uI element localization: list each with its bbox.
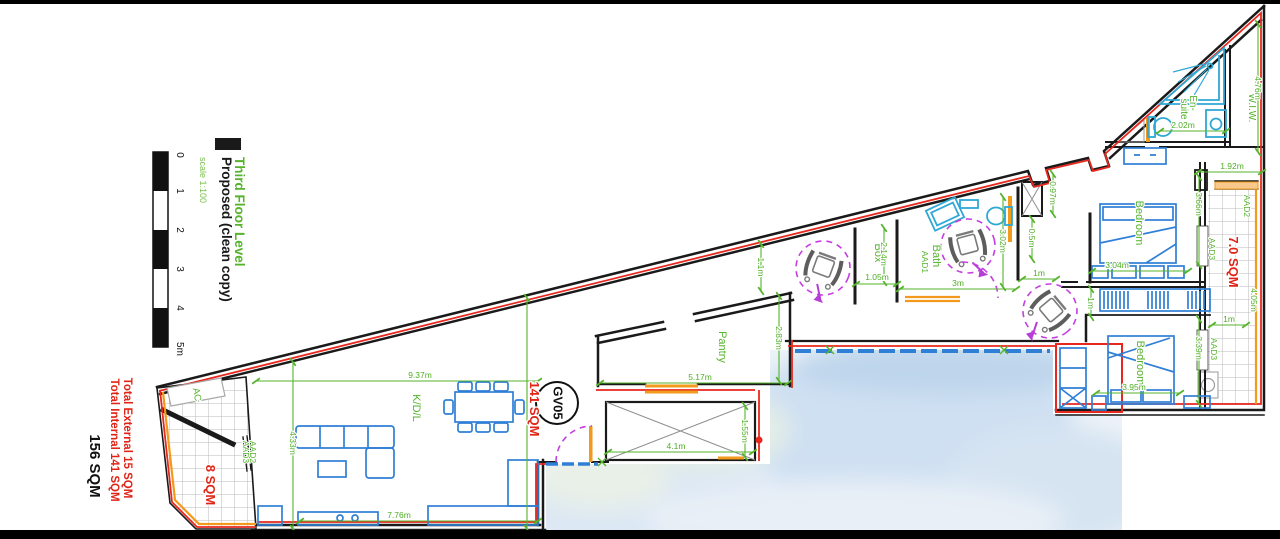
bed-2 bbox=[1092, 336, 1210, 410]
bedroom1-wall-bottom bbox=[1062, 282, 1205, 287]
room-label-bedroom1: Bedroom bbox=[1133, 201, 1145, 246]
dim-shaft2-h: 0.97m bbox=[1048, 181, 1058, 205]
floor-plan-drawing: GV05 K/D/L Pantry Box Bath AAD1 Bedroom … bbox=[0, 0, 1280, 539]
scale-bar: 0 1 2 3 4 5m bbox=[153, 152, 185, 356]
dim-bed1-w: 3.04m bbox=[1105, 260, 1129, 270]
dim-box-h: 2.14m bbox=[879, 242, 889, 266]
title-project: Proposed (clean copy) bbox=[219, 157, 234, 302]
aperture-balcony-aad3a: AAD3 bbox=[1207, 238, 1217, 260]
dim-bed2-h: 3.39m bbox=[1194, 336, 1204, 360]
total-combined: 156 SQM bbox=[86, 434, 103, 497]
dim-bath-h: 3.02m bbox=[998, 229, 1008, 253]
title-level: Third Floor Level bbox=[232, 157, 247, 267]
room-label-bath: Bath bbox=[930, 245, 942, 268]
ensuite-sink bbox=[1206, 110, 1226, 137]
aperture-balcony-aad3b: AAD3 bbox=[1209, 338, 1219, 360]
room-label-bedroom2: Bedroom bbox=[1134, 341, 1146, 386]
dim-kitchen-w: 7.76m bbox=[387, 510, 411, 520]
coffee-table bbox=[318, 461, 346, 477]
title-marker bbox=[215, 138, 241, 150]
room-label-ac: AC bbox=[190, 387, 203, 402]
bath-door-arc bbox=[962, 262, 998, 298]
room-label-kdl: K/D/L bbox=[410, 394, 422, 422]
scale-tick-0: 0 bbox=[174, 152, 185, 158]
scale-tick-4: 4 bbox=[174, 305, 185, 311]
dim-hall-1m-b: 1m bbox=[1086, 297, 1096, 309]
top-wall-inner-right bbox=[1110, 20, 1261, 158]
right-balcony-tiles bbox=[1198, 190, 1256, 405]
scale-tick-1: 1 bbox=[174, 188, 185, 194]
floor-plan-page: GV05 K/D/L Pantry Box Bath AAD1 Bedroom … bbox=[0, 0, 1280, 539]
dim-shaft-w: 4.1m bbox=[667, 441, 686, 451]
red-dot bbox=[756, 437, 763, 444]
bath-door bbox=[905, 297, 960, 301]
dim-balcony-h: 4.05m bbox=[1249, 288, 1259, 312]
dim-lobby-w: 0.5m bbox=[1027, 229, 1037, 248]
dim-wiw-w: 1.92m bbox=[1220, 161, 1244, 171]
bottom-border bbox=[0, 530, 1280, 539]
dim-bed2-w: 3.95m bbox=[1122, 382, 1146, 392]
aperture-terrace-aad2: AAD2 bbox=[248, 441, 258, 463]
wardrobe bbox=[1100, 289, 1210, 311]
dim-kdl-w: 9.37m bbox=[408, 370, 432, 380]
unit-badge-label: GV05 bbox=[551, 386, 566, 419]
dresser bbox=[1124, 148, 1166, 164]
scale-tick-3: 3 bbox=[174, 266, 185, 272]
aperture-label-aad1: AAD1 bbox=[920, 251, 930, 273]
pantry-wall-topright bbox=[694, 293, 793, 321]
pantry-door bbox=[645, 386, 698, 392]
dim-wiw-h: 4.76m bbox=[1253, 76, 1263, 100]
entrance-door-leaf bbox=[589, 426, 593, 462]
dining-table bbox=[444, 382, 524, 432]
blurred-region bbox=[520, 340, 1165, 539]
pantry-wall-topleft bbox=[596, 322, 665, 343]
dim-pantry-w: 5.17m bbox=[688, 372, 712, 382]
sofa bbox=[296, 426, 394, 478]
dim-ensuite-w: 2.02m bbox=[1171, 120, 1195, 130]
dim-shaft-h: 1.55m bbox=[740, 419, 750, 443]
dim-hall-1m-a: 1m bbox=[1033, 268, 1045, 278]
dim-bath-w: 3m bbox=[952, 278, 964, 288]
area-left-terrace: 8 SQM bbox=[203, 465, 218, 505]
closet-shelves bbox=[1060, 348, 1086, 408]
fixtures bbox=[926, 48, 1226, 231]
area-main: 141 SQM bbox=[527, 382, 542, 437]
area-totals: Total External 15 SQM Total Internal 141… bbox=[86, 378, 133, 502]
title-scale: scale 1:100 bbox=[198, 157, 208, 203]
area-right-balcony: 7.0 SQM bbox=[1226, 236, 1241, 287]
scale-tick-5: 5m bbox=[174, 342, 185, 356]
wheelchair-circle-1 bbox=[786, 233, 857, 308]
top-wall-outer bbox=[157, 6, 1264, 387]
room-label-pantry: Pantry bbox=[716, 331, 728, 363]
top-border bbox=[0, 0, 1280, 4]
room-label-ensuite-2: suite bbox=[1178, 98, 1189, 120]
bath-shelf bbox=[960, 200, 978, 208]
dim-balcony-1m: 1m bbox=[1223, 314, 1235, 324]
balcony-threshold bbox=[1215, 182, 1258, 189]
total-external: Total External 15 SQM bbox=[121, 378, 133, 499]
dim-bed1-h: 3.66m bbox=[1194, 192, 1204, 216]
title-block: Proposed (clean copy) Third Floor Level … bbox=[198, 138, 247, 302]
dim-pantry-h: 2.83m bbox=[774, 326, 784, 350]
aperture-balcony-aad2: AAD2 bbox=[1242, 195, 1252, 217]
dim-kdl-h: 4.33m bbox=[288, 431, 298, 455]
entrance-door-arc bbox=[556, 426, 592, 462]
dim-box-w: 1.05m bbox=[865, 272, 889, 282]
total-internal: Total Internal 141 SQM bbox=[108, 378, 120, 501]
scale-tick-2: 2 bbox=[174, 227, 185, 233]
dim-pantry-gap: 1.1m bbox=[756, 258, 766, 277]
